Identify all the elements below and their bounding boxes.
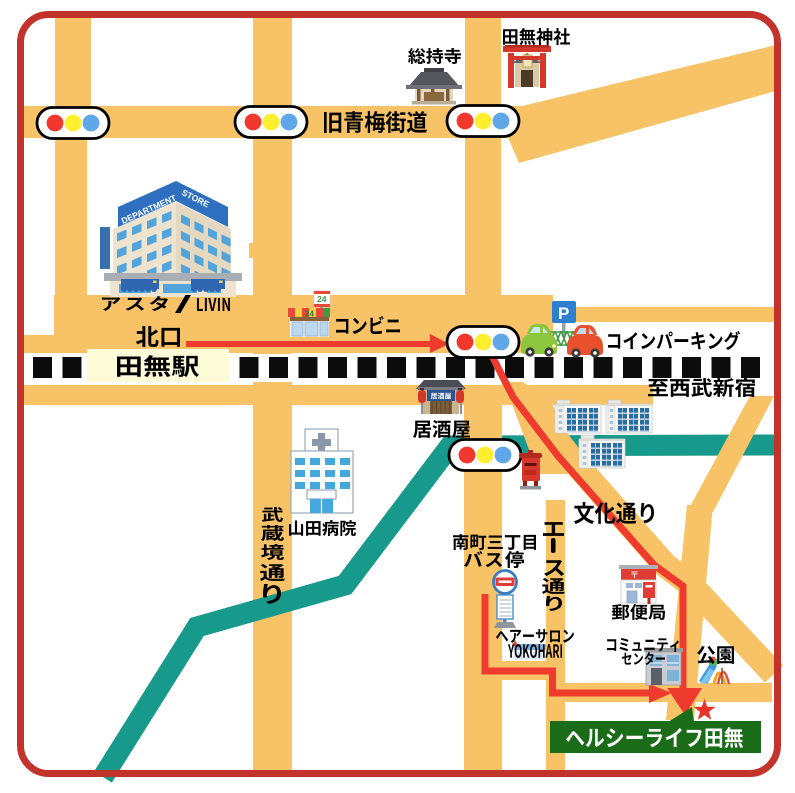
svg-text:P: P <box>558 304 569 323</box>
svg-text:24: 24 <box>317 294 327 304</box>
